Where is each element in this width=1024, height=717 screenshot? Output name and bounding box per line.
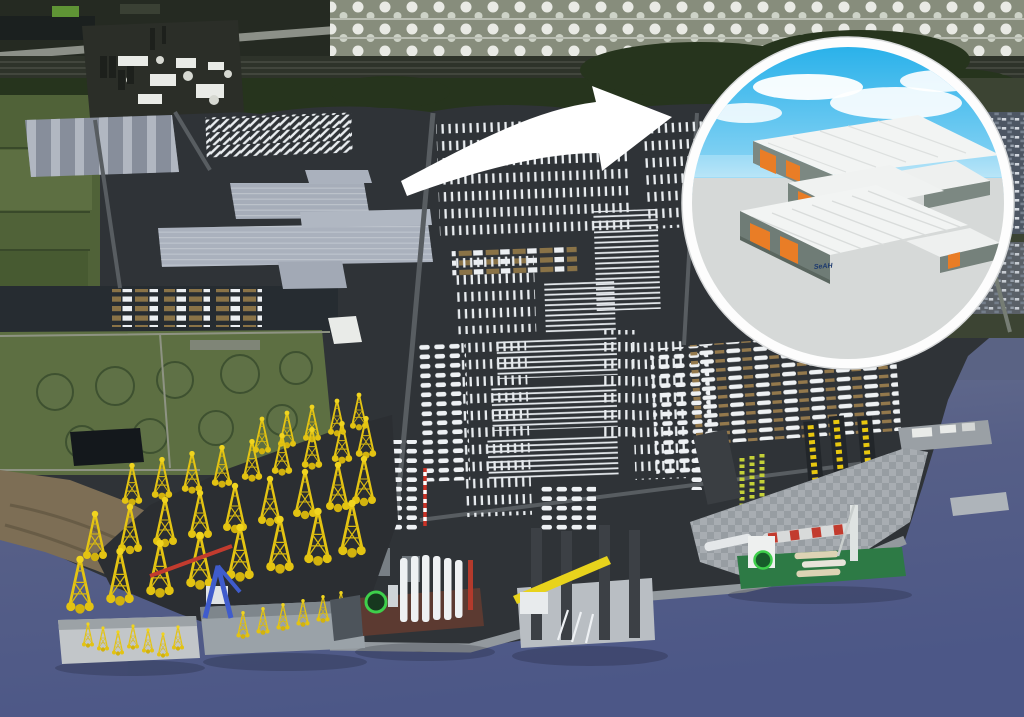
factory-inset: SeAH [682,37,1014,369]
helipad-green-vessel [755,552,772,569]
jacket-barge [58,616,200,664]
helipad [366,592,386,612]
blade-crate-storage [0,286,338,334]
site-marquee [328,316,362,344]
blade-rows-upper [205,112,352,157]
building-logo: SeAH [814,263,834,271]
scene-canvas: SeAH [0,0,1024,717]
tug-boat [330,595,363,641]
chemical-plant [82,20,244,118]
settling-pond [70,428,144,466]
aerial-port-rendering: SeAH [0,0,1024,717]
